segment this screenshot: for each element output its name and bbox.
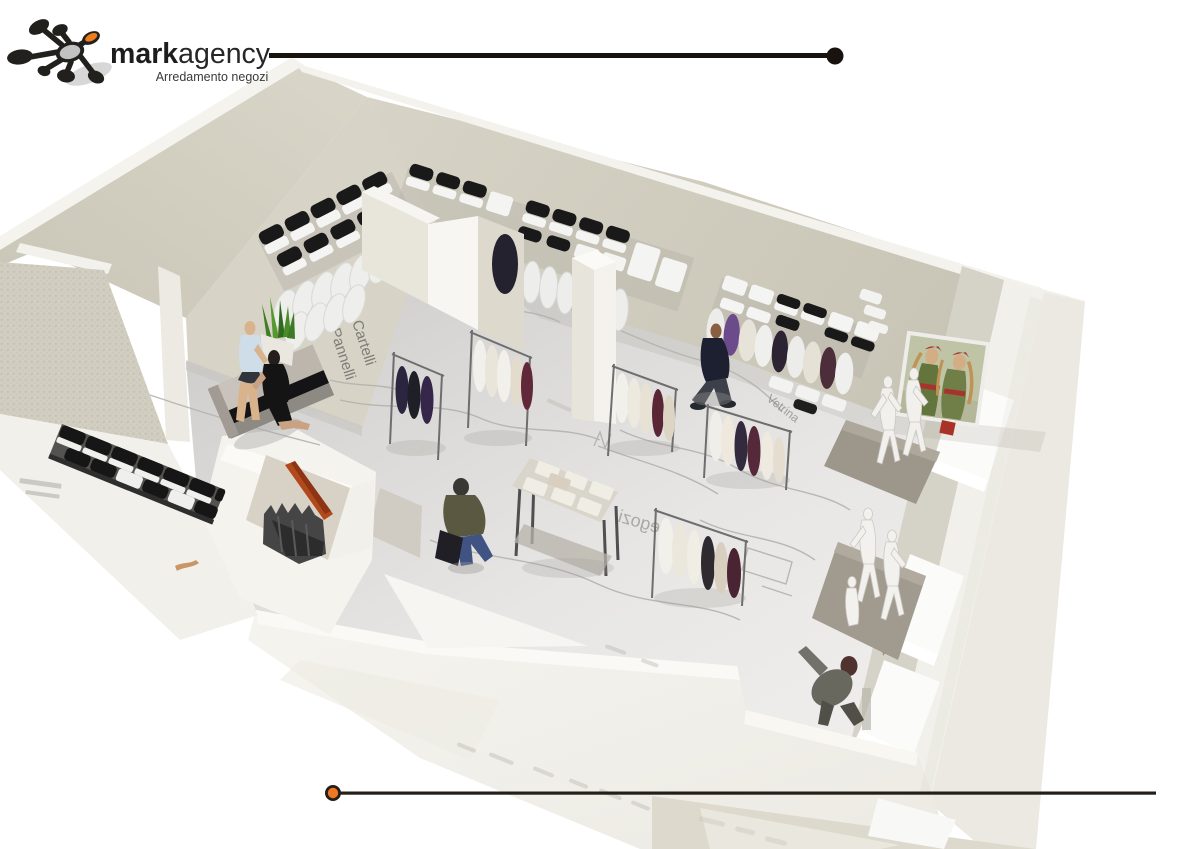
svg-text:Arredamento negozi: Arredamento negozi xyxy=(156,70,269,84)
svg-text:markagency: markagency xyxy=(110,38,271,70)
